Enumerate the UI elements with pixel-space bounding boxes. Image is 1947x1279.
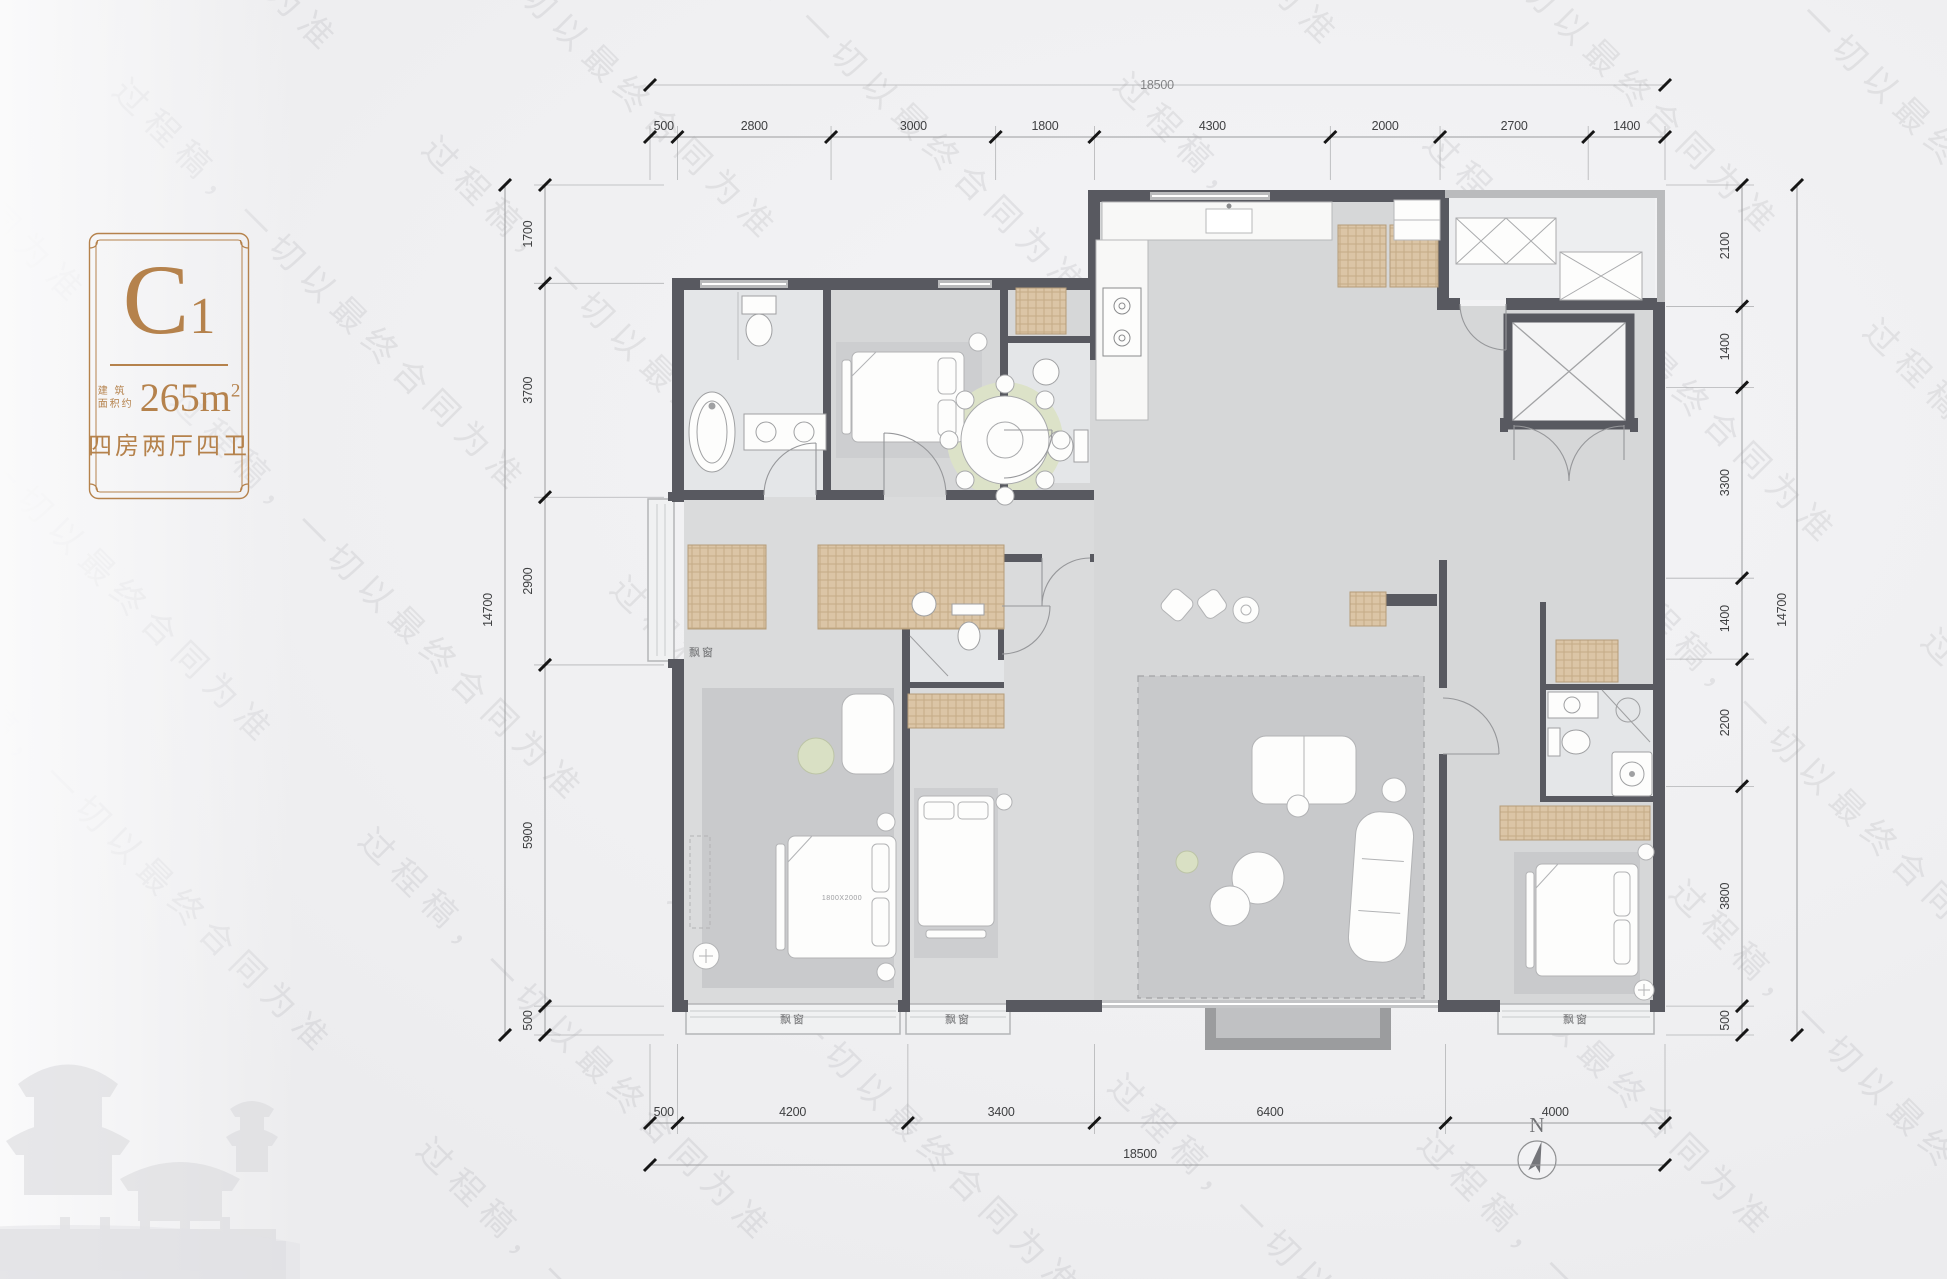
svg-text:2100: 2100 — [1718, 232, 1732, 259]
svg-text:1400: 1400 — [1718, 605, 1732, 632]
svg-text:3400: 3400 — [988, 1105, 1015, 1119]
svg-text:4200: 4200 — [779, 1105, 806, 1119]
elevator-shaft — [1508, 318, 1630, 425]
svg-text:500: 500 — [1718, 1010, 1732, 1031]
svg-text:18500: 18500 — [1123, 1147, 1157, 1161]
svg-text:3800: 3800 — [1718, 882, 1732, 909]
svg-text:500: 500 — [654, 1105, 675, 1119]
svg-text:2800: 2800 — [741, 119, 768, 133]
svg-text:1400: 1400 — [1718, 333, 1732, 360]
svg-text:14700: 14700 — [481, 593, 495, 627]
floor-plan: N 飘窗飘窗飘窗飘窗1800X2000 50028003000180043002… — [0, 0, 1947, 1279]
svg-text:2900: 2900 — [521, 567, 535, 594]
svg-text:500: 500 — [654, 119, 675, 133]
svg-text:2000: 2000 — [1372, 119, 1399, 133]
svg-text:14700: 14700 — [1775, 593, 1789, 627]
bay-window-label: 飘窗 — [945, 1012, 971, 1026]
svg-text:4000: 4000 — [1542, 1105, 1569, 1119]
svg-text:3700: 3700 — [521, 377, 535, 404]
bay-window-label: 飘窗 — [780, 1012, 806, 1026]
svg-text:1700: 1700 — [521, 220, 535, 247]
svg-text:2200: 2200 — [1718, 709, 1732, 736]
bed-size-label: 1800X2000 — [822, 895, 862, 902]
svg-text:5900: 5900 — [521, 822, 535, 849]
svg-text:2700: 2700 — [1501, 119, 1528, 133]
svg-text:1400: 1400 — [1613, 119, 1640, 133]
svg-text:18500: 18500 — [1140, 78, 1174, 92]
bay-window-label: 飘窗 — [1563, 1012, 1589, 1026]
floorplan-page: 过程稿，一切以最终合同为准 过程稿，一切以最终合同为准 过程稿，一切以最终合同为… — [0, 0, 1947, 1279]
svg-text:3300: 3300 — [1718, 469, 1732, 496]
svg-text:3000: 3000 — [900, 119, 927, 133]
bay-window-label: 飘窗 — [689, 645, 715, 659]
svg-text:500: 500 — [521, 1010, 535, 1031]
svg-text:4300: 4300 — [1199, 119, 1226, 133]
svg-text:6400: 6400 — [1256, 1105, 1283, 1119]
svg-text:1800: 1800 — [1032, 119, 1059, 133]
